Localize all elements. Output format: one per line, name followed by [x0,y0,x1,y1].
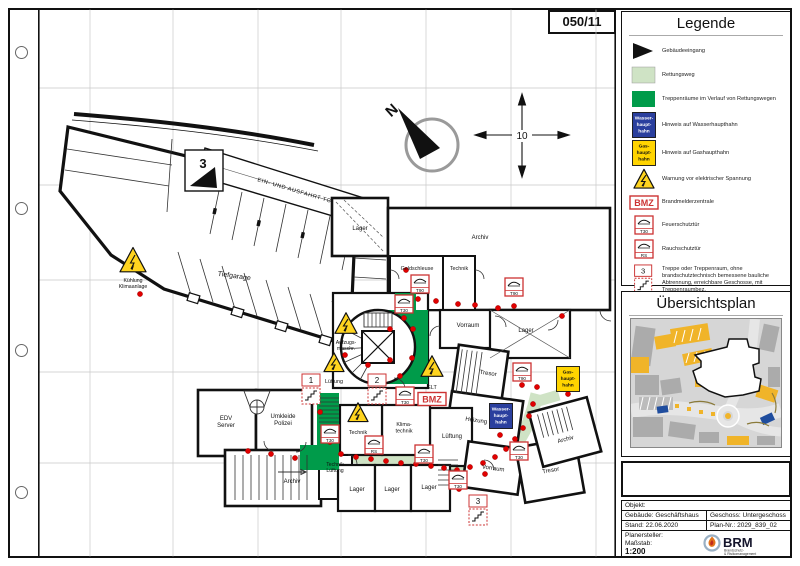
fire-door-icon: T30 [627,214,661,236]
detector-dot [368,456,373,461]
detector-dot [353,454,358,459]
detector-dot [317,409,322,414]
legend-item-label: Treppe oder Treppenraum, ohne brandschut… [662,266,786,294]
door-symbol-T30: T30 [510,442,528,460]
overview-map [630,318,782,448]
bmz-box: BMZ [418,393,446,406]
svg-text:BMZ: BMZ [422,394,442,404]
date-field: Stand: 22.06.2020 [622,521,706,530]
legend-item-label: Treppenräume im Verlauf von Rettungswege… [662,96,776,103]
detector-dot [441,465,446,470]
bmz-panel-icon: BMZ [627,193,661,212]
svg-text:haupt-: haupt- [494,413,509,419]
plan-type-banner: Feuerwehrplan [621,461,791,497]
plan-label: Archiv [284,479,301,485]
detector-dot [268,451,273,456]
svg-text:haupt-: haupt- [637,150,652,156]
door-symbol-T90: T90 [513,363,531,381]
company-logo: BRM Brandschutz- & Risikomanagement [700,531,790,557]
overview-panel: Übersichtsplan [621,291,791,457]
detector-dot [526,413,531,418]
svg-text:T30: T30 [420,458,428,463]
svg-text:Gas-: Gas- [639,144,650,150]
svg-text:T30: T30 [515,455,523,460]
svg-text:& Risikomanagement: & Risikomanagement [724,552,756,556]
detector-dot [534,384,539,389]
detector-dot [137,291,142,296]
detector-dot [433,298,438,303]
svg-text:haupt-: haupt- [561,376,576,382]
door-symbol-T30: T30 [449,471,467,489]
plan-label: Technik [450,266,469,272]
legend-item-building-entrance: Gebäudeeingang [626,39,786,63]
detector-dot [383,458,388,463]
divider [629,315,783,316]
building-entrance-icon [627,40,661,62]
detector-dot [565,391,570,396]
scale-value: 1:200 [625,547,697,556]
plan-label: Technik [349,430,368,436]
door-symbol-T30: T30 [395,295,413,313]
north-arrow-icon [398,108,458,171]
detector-dot [467,464,472,469]
svg-text:T90: T90 [416,288,424,293]
svg-text:3: 3 [641,267,645,276]
floor-plan: Wasser-haupt-hahnGas-haupt-hahn T90T90T3… [38,8,616,558]
legend-item-electric-warning: Warnung vor elektrischer Spannung [626,167,786,192]
legend-item-label: Gebäudeeingang [662,48,705,55]
stairwell-marker-1: 1 [302,374,320,404]
escape-route-icon [627,64,661,86]
door-symbol-T90: T90 [505,278,523,296]
svg-text:BMZ: BMZ [634,198,654,208]
detector-dot [482,471,487,476]
legend-items: GebäudeeingangRettungswegTreppenräume im… [622,38,790,299]
map-roundabout [717,405,739,427]
smoke-door-icon: RS [627,238,661,260]
objekt-label: Objekt: [622,501,790,510]
svg-text:3: 3 [476,497,481,506]
legend-item-gas-main: Gas-haupt-hahnHinweis auf Gashaupthahn [626,139,786,167]
svg-text:RS: RS [371,449,377,454]
detector-dot [409,355,414,360]
svg-text:Wasser-: Wasser- [492,407,511,413]
legend-item-bmz-panel: BMZBrandmelderzentrale [626,192,786,213]
plan-label: Lager [349,487,364,493]
detector-dot [472,302,477,307]
gas-main-sign: Gas-haupt-hahn [633,141,656,166]
svg-text:T30: T30 [401,400,409,405]
author-label: Planersteller: [625,532,697,539]
stairwell-marker-3: 3 [469,495,487,525]
detector-dot [365,362,370,367]
divider [629,35,783,36]
detector-dot [401,315,406,320]
detector-dot [512,436,517,441]
door-symbol-T90: T90 [411,275,429,293]
door-symbol-T30: T30 [635,216,653,234]
detector-dot [398,460,403,465]
legend-item-label: Feuerschutztür [662,222,699,229]
plan-label: Lager [352,226,367,232]
title-block: Objekt: Gebäude: Geschäftshaus Geschoss:… [621,500,791,557]
legend-item-label: Brandmelderzentrale [662,199,714,206]
plan-label: 3 [199,156,206,171]
svg-text:T30: T30 [454,484,462,489]
building-field: Gebäude: Geschäftshaus [622,511,706,520]
legend-item-label: Hinweis auf Wasserhaupthahn [662,122,738,129]
gas-main-icon: Gas-haupt-hahn [627,140,661,166]
plan-label: Lüftung [325,379,343,385]
plan-type-title: Feuerwehrplan [628,467,784,491]
stairwell-marker-3: 3 [635,265,652,294]
detector-dot [342,352,347,357]
detector-dot [519,382,524,387]
legend-panel: Legende GebäudeeingangRettungswegTreppen… [621,11,791,286]
storey-field: Geschoss: Untergeschoss [706,511,790,520]
plan-label: 10 [516,131,528,142]
svg-text:hahn: hahn [638,156,650,162]
binder-hole [15,202,28,215]
svg-text:hahn: hahn [638,128,650,134]
detector-dot [530,401,535,406]
door-symbol-T30: T30 [415,445,433,463]
svg-text:haupt-: haupt- [637,122,652,128]
legend-item-water-main: Wasser-haupt-hahnHinweis auf Wasserhaupt… [626,111,786,139]
svg-text:2: 2 [375,376,380,385]
water-main-sign: Wasser-haupt-hahn [490,404,513,429]
plan-label: Aufzugs-maschr. [336,340,357,352]
overview-title: Übersichtsplan [622,292,790,312]
detector-dot [455,301,460,306]
legend-item-smoke-door: RSRauchschutztür [626,237,786,261]
binder-hole [15,486,28,499]
detector-dot [511,303,516,308]
svg-text:RS: RS [641,253,647,258]
svg-text:T90: T90 [510,291,518,296]
legend-item-label: Warnung vor elektrischer Spannung [662,176,751,183]
plan-label: Geldschleuse [401,266,434,272]
svg-text:T90: T90 [518,376,526,381]
plan-number-field: Plan-Nr.: 2029_839_02 [706,521,790,530]
legend-item-fire-door: T30Feuerschutztür [626,213,786,237]
svg-text:T30: T30 [400,308,408,313]
plan-label: Lager [384,487,399,493]
svg-text:hahn: hahn [562,382,574,388]
legend-item-label: Rettungsweg [662,72,695,79]
plan-label: N [382,101,401,121]
svg-text:Wasser-: Wasser- [635,116,654,122]
plan-label: ELT [427,385,437,391]
plan-label: Lager [518,328,533,334]
detector-dot [428,463,433,468]
fire-safety-plan-sheet: 050/11 [0,0,800,566]
door-symbol-RS: RS [365,436,383,454]
svg-text:Gas-: Gas- [563,370,574,376]
electric-warning-icon [634,169,654,188]
legend-item-label: Hinweis auf Gashaupthahn [662,150,729,157]
svg-text:hahn: hahn [495,419,507,425]
plan-label: Vorraum [457,323,480,329]
water-main-icon: Wasser-haupt-hahn [627,112,661,138]
plan-label: Lager [421,485,436,491]
detector-dot [387,326,392,331]
gas-main-sign: Gas-haupt-hahn [557,367,580,392]
stairwell-marker-2: 2 [368,374,386,404]
door-symbol-T30: T30 [396,387,414,405]
scale-label: Maßstab: [625,540,697,547]
legend-item-stairwell: Treppenräume im Verlauf von Rettungswege… [626,87,786,111]
plan-label: Lüftung [442,434,462,440]
detector-dot [520,425,525,430]
svg-text:T30: T30 [640,229,648,234]
water-main-sign: Wasser-haupt-hahn [633,113,656,138]
detector-dot [410,326,415,331]
detector-dot [397,373,402,378]
stairwell-icon [627,88,661,110]
detector-dot [415,296,420,301]
detector-dot [387,357,392,362]
svg-text:T30: T30 [326,438,334,443]
detector-dot [503,446,508,451]
door-symbol-RS: RS [635,240,653,258]
binder-hole [15,46,28,59]
detector-dot [245,448,250,453]
door-symbol-T30: T30 [321,425,339,443]
detector-dot [492,454,497,459]
binder-hole [15,344,28,357]
legend-item-label: Rauchschutztür [662,246,701,253]
plan-label: TechnikLüftung [326,462,344,474]
electric-warning-icon [627,168,661,191]
detector-dot [338,451,343,456]
legend-title: Legende [622,12,790,32]
detector-dot [292,455,297,460]
bmz-box: BMZ [630,196,658,209]
svg-text:1: 1 [309,376,314,385]
legend-item-escape-route: Rettungsweg [626,63,786,87]
detector-dot [559,313,564,318]
detector-dot [497,432,502,437]
detector-dot [495,305,500,310]
bmz-symbol: BMZ [418,393,446,406]
plan-label: Archiv [472,235,489,241]
plan-label: Klima-technik [395,422,412,434]
